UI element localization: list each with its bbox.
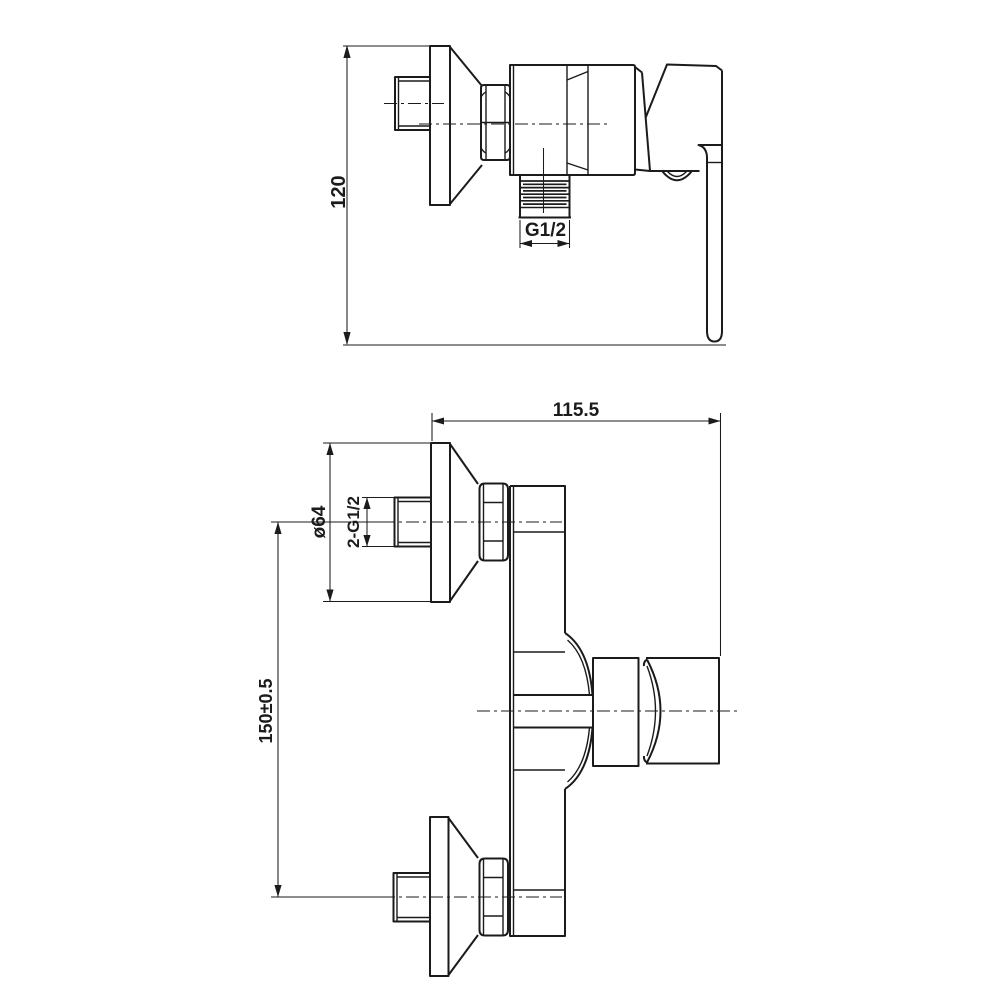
hex-nut <box>481 85 510 160</box>
handle-assembly <box>593 658 719 766</box>
arrowhead-down <box>363 535 370 547</box>
lever-round-end <box>707 331 722 342</box>
dimension-center-distance: 150±0.5 <box>256 522 384 897</box>
dim-label-outlet-thread: G1/2 <box>525 220 566 241</box>
valve-body <box>510 65 635 175</box>
lever-top-face <box>699 145 723 157</box>
arrowhead-right <box>558 240 570 247</box>
arrowhead-down <box>274 885 281 897</box>
outlet-threads <box>520 181 570 204</box>
lever-handle <box>699 71 723 342</box>
arrowhead-up <box>343 45 350 58</box>
cartridge-cap <box>593 658 639 766</box>
arrowhead-down <box>343 332 350 345</box>
wall-flange <box>430 46 450 205</box>
dim-label-width: 115.5 <box>553 400 600 421</box>
dim-label-height: 120 <box>328 175 350 208</box>
body-section-lines <box>567 65 588 175</box>
dimension-outlet-thread: G1/2 <box>520 220 570 248</box>
arrowhead-left <box>432 418 444 425</box>
arrowhead-left <box>520 240 532 247</box>
threaded-outlet <box>519 148 572 218</box>
dim-label-center-distance: 150±0.5 <box>256 679 276 744</box>
side-view: 120 <box>328 45 726 345</box>
arrowhead-right <box>709 418 721 425</box>
extension-line <box>271 522 384 897</box>
body-outline <box>510 65 635 175</box>
body-cone-edges <box>567 72 588 171</box>
cap-outline <box>642 65 722 172</box>
dimension-width: 115.5 <box>432 400 721 656</box>
technical-drawing-page: 120 <box>0 0 1000 1000</box>
setscrew-boss-inner <box>668 172 687 177</box>
shower-mixer-technical-drawing: 120 <box>0 0 1000 1000</box>
arrowhead-up <box>274 522 281 534</box>
flange-cone <box>450 47 482 204</box>
arrowhead-up <box>326 443 333 455</box>
arrowhead-down <box>326 590 333 602</box>
front-view: 115.5 <box>256 400 738 976</box>
arrowhead-up <box>363 498 370 510</box>
